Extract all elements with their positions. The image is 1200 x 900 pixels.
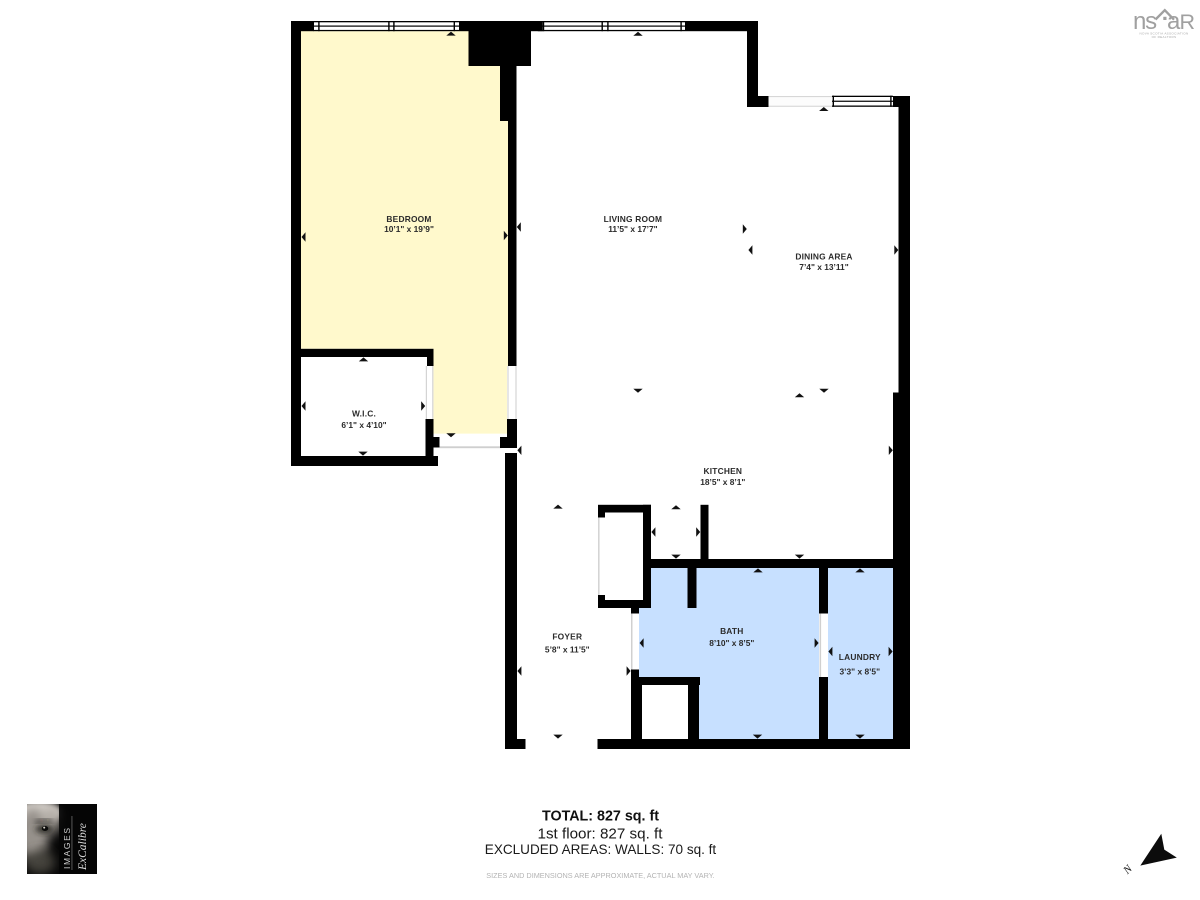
svg-text:SIZES AND DIMENSIONS ARE APPRO: SIZES AND DIMENSIONS ARE APPROXIMATE, AC…	[486, 871, 714, 880]
svg-text:11’5" x 17’7": 11’5" x 17’7"	[608, 224, 657, 234]
svg-text:IMAGES: IMAGES	[62, 826, 72, 869]
svg-text:10’1" x 19’9": 10’1" x 19’9"	[384, 224, 434, 234]
svg-text:KITCHEN: KITCHEN	[703, 466, 742, 476]
svg-text:W.I.C.: W.I.C.	[352, 408, 376, 418]
svg-text:8’10" x 8’5": 8’10" x 8’5"	[709, 638, 754, 648]
svg-text:6’1" x 4’10": 6’1" x 4’10"	[341, 420, 386, 430]
svg-text:ExCalibre: ExCalibre	[77, 823, 89, 871]
svg-text:BEDROOM: BEDROOM	[386, 214, 431, 224]
svg-text:FOYER: FOYER	[552, 632, 582, 642]
svg-text:5’8" x 11’5": 5’8" x 11’5"	[545, 644, 590, 654]
svg-text:OF REALTORS: OF REALTORS	[1152, 35, 1177, 39]
svg-text:R: R	[1180, 10, 1196, 34]
svg-text:BATH: BATH	[720, 626, 743, 636]
svg-text:LAUNDRY: LAUNDRY	[839, 652, 881, 662]
svg-text:DINING AREA: DINING AREA	[795, 251, 852, 261]
svg-text:18’5" x 8’1": 18’5" x 8’1"	[700, 477, 745, 487]
svg-text:TOTAL: 827 sq. ft: TOTAL: 827 sq. ft	[542, 809, 659, 825]
svg-text:LIVING ROOM: LIVING ROOM	[604, 214, 663, 224]
svg-text:EXCLUDED AREAS: WALLS: 70 sq.: EXCLUDED AREAS: WALLS: 70 sq. ft	[485, 842, 717, 857]
svg-text:7’4" x 13’11": 7’4" x 13’11"	[799, 262, 848, 272]
svg-text:1st floor: 827 sq. ft: 1st floor: 827 sq. ft	[538, 826, 664, 843]
svg-text:3’3" x 8’5": 3’3" x 8’5"	[840, 666, 881, 676]
